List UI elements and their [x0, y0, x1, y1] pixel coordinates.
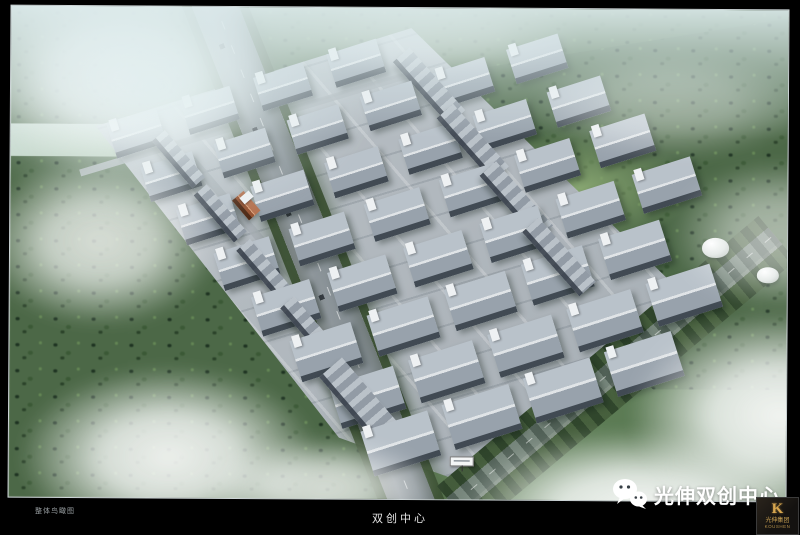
warehouse-building — [403, 230, 474, 288]
warehouse-building — [442, 384, 523, 450]
warehouse-building — [444, 271, 518, 331]
warehouse-building — [367, 296, 441, 356]
haze-top — [11, 6, 789, 141]
warehouse-building — [555, 181, 626, 239]
aerial-rendering-photo — [8, 5, 790, 503]
warehouse-building — [598, 220, 672, 280]
wechat-icon — [612, 478, 648, 510]
warehouse-building — [327, 254, 398, 312]
warehouse-building — [289, 212, 356, 267]
warehouse-building — [364, 187, 431, 242]
brand-logo: K 光伸集团 KOUSHEN — [756, 497, 799, 535]
logo-latin: KOUSHEN — [765, 525, 791, 530]
logo-letter: K — [772, 502, 784, 517]
warehouse-building — [523, 358, 604, 424]
caption-project-name: 双创中心 — [0, 510, 800, 526]
entrance-sign — [450, 456, 474, 466]
warehouse-building — [514, 138, 581, 193]
watermark: 光伸双创中心 — [612, 478, 780, 510]
